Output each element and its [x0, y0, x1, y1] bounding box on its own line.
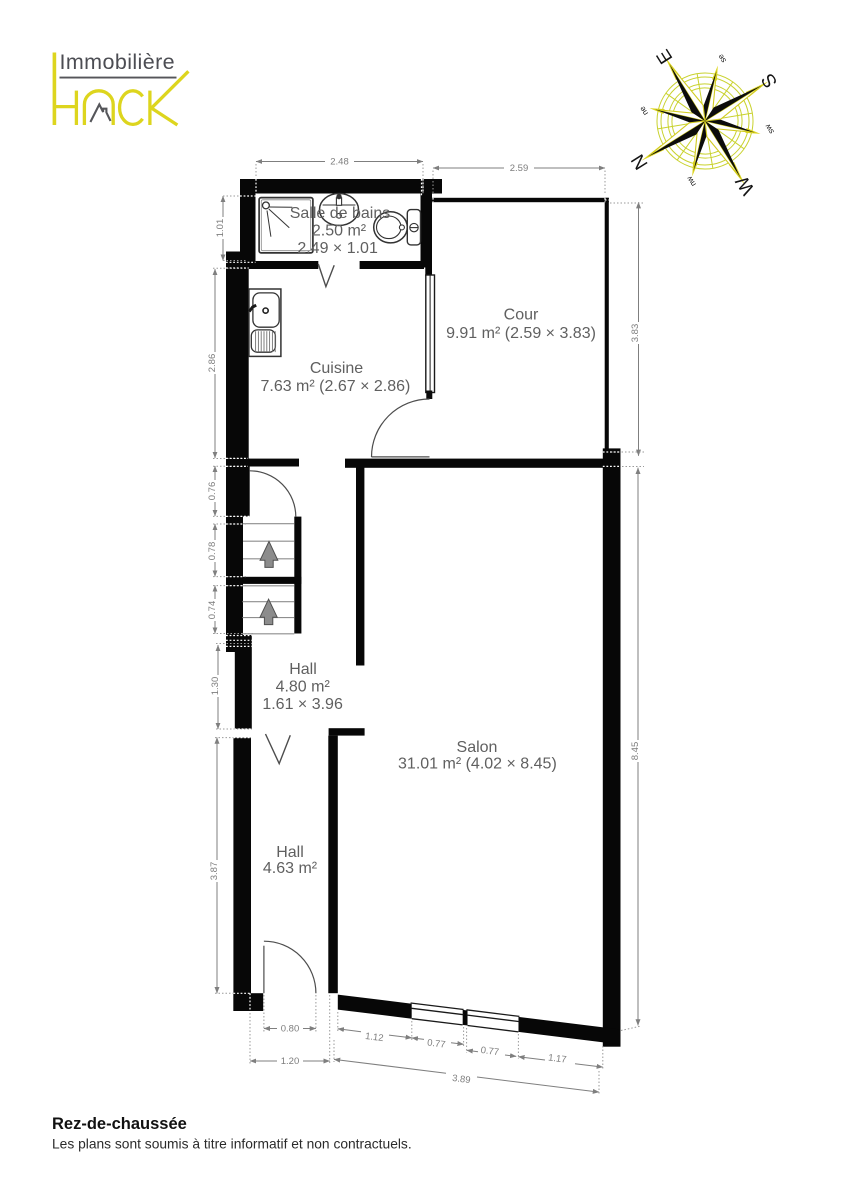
svg-text:1.12: 1.12: [364, 1031, 384, 1044]
svg-text:0.80: 0.80: [281, 1024, 300, 1035]
svg-text:2.49 × 1.01: 2.49 × 1.01: [297, 240, 378, 257]
svg-text:7.63 m² (2.67 × 2.86): 7.63 m² (2.67 × 2.86): [260, 378, 410, 395]
svg-text:Immobilière: Immobilière: [60, 50, 176, 74]
svg-text:4.63 m²: 4.63 m²: [263, 860, 318, 877]
svg-text:3.87: 3.87: [209, 862, 220, 881]
svg-text:0.74: 0.74: [207, 601, 218, 620]
svg-text:Cour: Cour: [504, 307, 539, 324]
svg-text:8.45: 8.45: [630, 742, 641, 761]
svg-text:2.48: 2.48: [330, 157, 349, 168]
svg-text:Salon: Salon: [457, 739, 498, 756]
svg-text:1.17: 1.17: [547, 1052, 567, 1065]
svg-text:Hall: Hall: [289, 661, 317, 678]
svg-text:3.83: 3.83: [630, 324, 641, 343]
svg-text:1.61 × 3.96: 1.61 × 3.96: [262, 696, 343, 713]
svg-text:3.89: 3.89: [451, 1073, 471, 1086]
svg-text:2.50 m²: 2.50 m²: [312, 223, 367, 240]
svg-text:0.76: 0.76: [207, 482, 218, 501]
svg-text:9.91 m² (2.59 × 3.83): 9.91 m² (2.59 × 3.83): [446, 325, 596, 342]
svg-text:1.20: 1.20: [281, 1056, 300, 1067]
svg-text:2.59: 2.59: [510, 163, 529, 174]
svg-text:0.77: 0.77: [426, 1037, 446, 1050]
svg-text:0.77: 0.77: [480, 1045, 500, 1058]
svg-text:1.01: 1.01: [215, 219, 226, 238]
svg-text:31.01 m² (4.02 × 8.45): 31.01 m² (4.02 × 8.45): [398, 755, 557, 772]
svg-text:Cuisine: Cuisine: [310, 360, 363, 377]
svg-text:4.80 m²: 4.80 m²: [276, 679, 331, 696]
svg-text:Rez-de-chaussée: Rez-de-chaussée: [52, 1115, 187, 1133]
svg-text:0.78: 0.78: [207, 542, 218, 561]
svg-text:Hall: Hall: [276, 844, 304, 861]
svg-text:Salle de bains: Salle de bains: [290, 205, 391, 222]
svg-text:Les plans sont soumis à titre: Les plans sont soumis à titre informatif…: [52, 1137, 412, 1152]
svg-text:1.30: 1.30: [210, 677, 221, 696]
svg-text:2.86: 2.86: [207, 354, 218, 373]
